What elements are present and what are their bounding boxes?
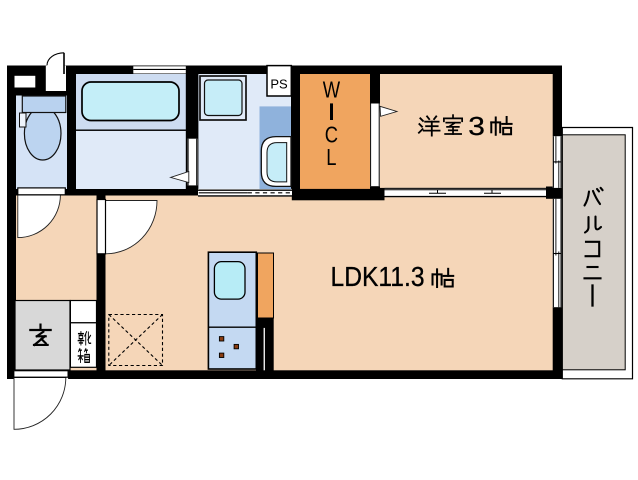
svg-text:LDK11.3: LDK11.3 [331,261,425,293]
svg-text:PS: PS [270,77,288,92]
svg-text:W: W [323,78,341,103]
svg-text:3: 3 [468,112,485,141]
svg-text:L: L [326,145,336,170]
